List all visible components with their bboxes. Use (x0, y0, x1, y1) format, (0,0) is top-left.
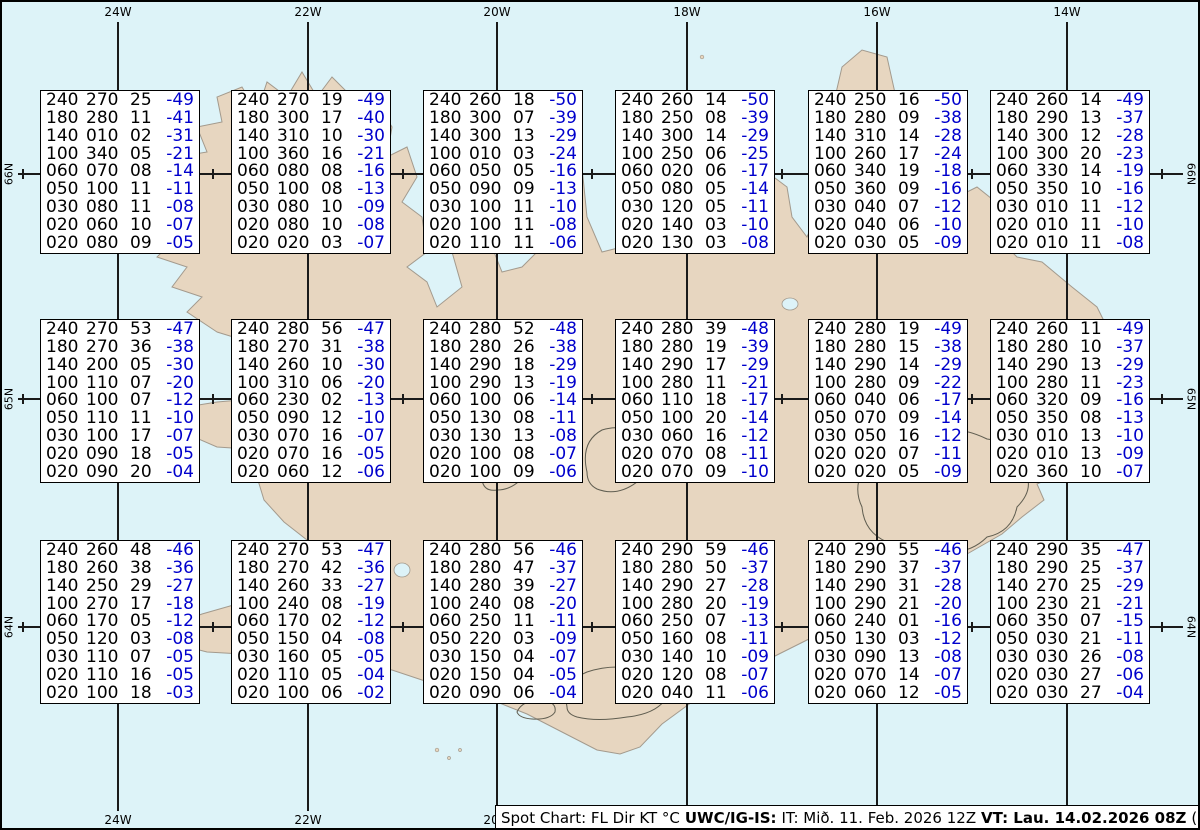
temperature-value: -27 (351, 578, 385, 596)
flight-level-value: 180 (46, 110, 86, 128)
spot-data-box: 24029035-4718029025-3714027025-291002302… (990, 540, 1150, 704)
data-row: 18029037-37 (814, 560, 962, 578)
temperature-value: -28 (735, 578, 769, 596)
temperature-value: -05 (928, 685, 962, 703)
wind-speed-value: 10 (1080, 464, 1110, 482)
graticule-tick (402, 394, 404, 404)
data-row: 02003005-09 (814, 235, 962, 253)
wind-speed-value: 10 (321, 357, 351, 375)
graticule-tick (1161, 169, 1163, 179)
latitude-label-left: 66N (3, 163, 16, 185)
wind-direction-value: 270 (1036, 578, 1080, 596)
wind-speed-value: 15 (898, 339, 928, 357)
data-row: 18027042-36 (237, 560, 385, 578)
flight-level-value: 020 (814, 235, 854, 253)
wind-speed-value: 08 (705, 110, 735, 128)
wind-direction-value: 290 (854, 578, 898, 596)
data-row: 14026010-30 (237, 357, 385, 375)
data-row: 18028011-41 (46, 110, 194, 128)
temperature-value: -09 (928, 464, 962, 482)
data-row: 18030007-39 (429, 110, 577, 128)
wind-speed-value: 19 (705, 339, 735, 357)
data-row: 14029014-29 (814, 357, 962, 375)
wind-speed-value: 33 (321, 578, 351, 596)
flight-level-value: 180 (237, 339, 277, 357)
data-row: 02006012-05 (814, 685, 962, 703)
wind-direction-value: 030 (1036, 685, 1080, 703)
temperature-value: -38 (928, 110, 962, 128)
graticule-tick (212, 622, 214, 632)
temperature-value: -38 (928, 339, 962, 357)
flight-level-value: 180 (996, 339, 1036, 357)
temperature-value: -09 (928, 235, 962, 253)
flight-level-value: 020 (237, 685, 277, 703)
graticule-tick (402, 622, 404, 632)
wind-speed-value: 13 (513, 128, 543, 146)
latitude-label-right: 66N (1185, 163, 1198, 185)
longitude-label-top: 24W (104, 5, 131, 19)
wind-speed-value: 14 (898, 128, 928, 146)
temperature-value: -29 (928, 357, 962, 375)
temperature-value: -29 (735, 357, 769, 375)
flight-level-value: 140 (429, 578, 469, 596)
temperature-value: -37 (1110, 560, 1144, 578)
wind-speed-value: 06 (321, 685, 351, 703)
wind-direction-value: 290 (661, 357, 705, 375)
data-row: 18028009-38 (814, 110, 962, 128)
wind-speed-value: 20 (130, 464, 160, 482)
temperature-value: -41 (160, 110, 194, 128)
wind-speed-value: 36 (130, 339, 160, 357)
flight-level-value: 140 (237, 128, 277, 146)
wind-speed-value: 37 (898, 560, 928, 578)
wind-direction-value: 020 (277, 235, 321, 253)
flight-level-value: 180 (46, 339, 86, 357)
temperature-value: -28 (928, 578, 962, 596)
temperature-value: -10 (735, 464, 769, 482)
latitude-label-right: 64N (1185, 616, 1198, 638)
wind-speed-value: 31 (898, 578, 928, 596)
spot-data-box: 24027053-4718027042-3614026033-271002400… (231, 540, 391, 704)
temperature-value: -04 (543, 685, 577, 703)
wind-speed-value: 12 (898, 685, 928, 703)
wind-speed-value: 47 (513, 560, 543, 578)
status-segment: Spot Chart: FL Dir KT °C (501, 809, 680, 827)
spot-data-box: 24028019-4918028015-3814029014-291002800… (808, 319, 968, 483)
wind-direction-value: 280 (854, 110, 898, 128)
wind-speed-value: 12 (321, 464, 351, 482)
wind-direction-value: 020 (854, 464, 898, 482)
wind-direction-value: 270 (86, 339, 130, 357)
thingvallavatn-lake (394, 563, 410, 577)
data-row: 02001011-08 (996, 235, 1144, 253)
temperature-value: -28 (1110, 128, 1144, 146)
temperature-value: -40 (351, 110, 385, 128)
temperature-value: -06 (351, 464, 385, 482)
data-row: 14028039-27 (429, 578, 577, 596)
data-row: 02011011-06 (429, 235, 577, 253)
temperature-value: -38 (160, 339, 194, 357)
temperature-value: -08 (735, 235, 769, 253)
flight-level-value: 180 (814, 110, 854, 128)
data-row: 18027036-38 (46, 339, 194, 357)
flight-level-value: 140 (996, 128, 1036, 146)
flight-level-value: 180 (237, 110, 277, 128)
data-row: 02008009-05 (46, 235, 194, 253)
flight-level-value: 020 (814, 685, 854, 703)
temperature-value: -37 (1110, 339, 1144, 357)
latitude-label-left: 65N (3, 388, 16, 410)
graticule-tick (212, 394, 214, 404)
wind-speed-value: 05 (130, 357, 160, 375)
wind-speed-value: 25 (1080, 578, 1110, 596)
wind-direction-value: 100 (86, 685, 130, 703)
wind-direction-value: 290 (1036, 110, 1080, 128)
graticule-tick (402, 169, 404, 179)
status-segment: IT: Mið. 11. Feb. 2026 12Z (782, 809, 977, 827)
graticule-tick (971, 394, 973, 404)
wind-direction-value: 060 (854, 685, 898, 703)
wind-direction-value: 250 (86, 578, 130, 596)
wind-speed-value: 17 (321, 110, 351, 128)
wind-direction-value: 080 (86, 235, 130, 253)
spot-data-box: 24026048-4618026038-3614025029-271002701… (40, 540, 200, 704)
status-segment-bold: VT: Lau. 14.02.2026 08Z (981, 809, 1186, 827)
wind-direction-value: 310 (854, 128, 898, 146)
temperature-value: -02 (351, 685, 385, 703)
wind-speed-value: 31 (321, 339, 351, 357)
latitude-label-left: 64N (3, 616, 16, 638)
flight-level-value: 140 (237, 578, 277, 596)
wind-direction-value: 100 (469, 464, 513, 482)
flight-level-value: 020 (237, 235, 277, 253)
status-segment-bold: UWC/IG-IS: (685, 809, 777, 827)
temperature-value: -29 (1110, 578, 1144, 596)
wind-speed-value: 17 (705, 357, 735, 375)
flight-level-value: 020 (621, 235, 661, 253)
graticule-tick (212, 169, 214, 179)
wind-direction-value: 290 (1036, 357, 1080, 375)
wind-direction-value: 280 (469, 560, 513, 578)
spot-chart-frame: 24W24W22W22W20W20W18W16W14W66N66N65N65N6… (0, 0, 1200, 830)
flight-level-value: 180 (621, 560, 661, 578)
flight-level-value: 140 (814, 128, 854, 146)
flight-level-value: 180 (46, 560, 86, 578)
wind-direction-value: 260 (277, 578, 321, 596)
flight-level-value: 180 (996, 560, 1036, 578)
data-row: 02013003-08 (621, 235, 769, 253)
wind-speed-value: 26 (513, 339, 543, 357)
graticule-tick (22, 394, 24, 404)
wind-speed-value: 10 (321, 128, 351, 146)
temperature-value: -05 (160, 235, 194, 253)
flight-level-value: 180 (237, 560, 277, 578)
temperature-value: -06 (735, 685, 769, 703)
wind-direction-value: 290 (854, 357, 898, 375)
data-row: 18029025-37 (996, 560, 1144, 578)
data-row: 14031010-30 (237, 128, 385, 146)
wind-direction-value: 300 (661, 128, 705, 146)
longitude-label-top: 18W (673, 5, 700, 19)
wind-direction-value: 090 (469, 685, 513, 703)
data-row: 18028026-38 (429, 339, 577, 357)
flight-level-value: 140 (996, 578, 1036, 596)
wind-direction-value: 280 (661, 560, 705, 578)
wind-direction-value: 200 (86, 357, 130, 375)
graticule-tick (971, 622, 973, 632)
flight-level-value: 140 (429, 128, 469, 146)
wind-speed-value: 09 (705, 464, 735, 482)
wind-speed-value: 50 (705, 560, 735, 578)
graticule-tick (22, 169, 24, 179)
wind-speed-value: 09 (130, 235, 160, 253)
temperature-value: -06 (543, 235, 577, 253)
temperature-value: -36 (160, 560, 194, 578)
longitude-label-top: 20W (483, 5, 510, 19)
spot-data-box: 24026011-4918028010-3714029013-291002801… (990, 319, 1150, 483)
data-row: 02010009-06 (429, 464, 577, 482)
data-row: 18028050-37 (621, 560, 769, 578)
wind-direction-value: 110 (469, 235, 513, 253)
flight-level-value: 020 (814, 464, 854, 482)
wind-speed-value: 14 (705, 128, 735, 146)
temperature-value: -37 (543, 560, 577, 578)
spot-data-box: 24028052-4818028026-3814029018-291002901… (423, 319, 583, 483)
status-bar: Spot Chart: FL Dir KT °CUWC/IG-IS:IT: Mi… (495, 805, 1200, 830)
temperature-value: -07 (351, 235, 385, 253)
spot-data-box: 24027025-4918028011-4114001002-311003400… (40, 90, 200, 254)
graticule-tick (591, 394, 593, 404)
temperature-value: -07 (1110, 464, 1144, 482)
wind-direction-value: 310 (277, 128, 321, 146)
temperature-value: -04 (160, 464, 194, 482)
temperature-value: -30 (351, 357, 385, 375)
data-row: 02004011-06 (621, 685, 769, 703)
spot-data-box: 24028039-4818028019-3914029017-291002801… (615, 319, 775, 483)
flight-level-value: 140 (46, 128, 86, 146)
flight-level-value: 180 (429, 110, 469, 128)
data-row: 14029017-29 (621, 357, 769, 375)
status-segment: (+68 h) (1191, 809, 1200, 827)
wind-direction-value: 290 (854, 560, 898, 578)
data-row: 18026038-36 (46, 560, 194, 578)
temperature-value: -06 (543, 464, 577, 482)
wind-speed-value: 14 (898, 357, 928, 375)
temperature-value: -36 (351, 560, 385, 578)
temperature-value: -37 (928, 560, 962, 578)
temperature-value: -03 (160, 685, 194, 703)
wind-speed-value: 25 (1080, 560, 1110, 578)
wind-speed-value: 11 (1080, 235, 1110, 253)
wind-direction-value: 060 (277, 464, 321, 482)
wind-speed-value: 05 (898, 235, 928, 253)
graticule-tick (1161, 394, 1163, 404)
flight-level-value: 020 (46, 235, 86, 253)
data-row: 02010006-02 (237, 685, 385, 703)
wind-speed-value: 13 (1080, 357, 1110, 375)
longitude-label-top: 14W (1053, 5, 1080, 19)
flight-level-value: 180 (429, 560, 469, 578)
wind-direction-value: 280 (469, 578, 513, 596)
wind-speed-value: 03 (321, 235, 351, 253)
wind-direction-value: 270 (277, 339, 321, 357)
wind-direction-value: 290 (469, 357, 513, 375)
flight-level-value: 140 (429, 357, 469, 375)
spot-data-box: 24026014-4918029013-3714030012-281003002… (990, 90, 1150, 254)
wind-direction-value: 100 (277, 685, 321, 703)
wind-direction-value: 010 (86, 128, 130, 146)
wind-speed-value: 38 (130, 560, 160, 578)
wind-speed-value: 27 (705, 578, 735, 596)
flight-level-value: 020 (996, 235, 1036, 253)
flight-level-value: 020 (237, 464, 277, 482)
wind-direction-value: 260 (86, 560, 130, 578)
data-row: 14029018-29 (429, 357, 577, 375)
flight-level-value: 140 (621, 357, 661, 375)
data-row: 02009020-04 (46, 464, 194, 482)
wind-direction-value: 360 (1036, 464, 1080, 482)
longitude-label-top: 22W (294, 5, 321, 19)
flight-level-value: 140 (814, 357, 854, 375)
graticule-tick (591, 622, 593, 632)
data-row: 18029013-37 (996, 110, 1144, 128)
graticule-tick (971, 169, 973, 179)
wind-direction-value: 260 (277, 357, 321, 375)
data-row: 14026033-27 (237, 578, 385, 596)
flight-level-value: 180 (621, 339, 661, 357)
spot-data-box: 24025016-5018028009-3814031014-281002601… (808, 90, 968, 254)
graticule-tick (781, 169, 783, 179)
spot-data-box: 24026018-5018030007-3914030013-291000100… (423, 90, 583, 254)
data-row: 18028047-37 (429, 560, 577, 578)
data-row: 14030013-29 (429, 128, 577, 146)
data-row: 02006012-06 (237, 464, 385, 482)
data-row: 18028019-39 (621, 339, 769, 357)
wind-speed-value: 18 (130, 685, 160, 703)
wind-speed-value: 11 (513, 235, 543, 253)
flight-level-value: 020 (429, 464, 469, 482)
spot-data-box: 24027019-4918030017-4014031010-301003601… (231, 90, 391, 254)
graticule-tick (781, 394, 783, 404)
wind-direction-value: 290 (661, 578, 705, 596)
data-row: 14031014-28 (814, 128, 962, 146)
flight-level-value: 180 (429, 339, 469, 357)
flight-level-value: 180 (814, 339, 854, 357)
data-row: 14029027-28 (621, 578, 769, 596)
flight-level-value: 140 (46, 357, 86, 375)
wind-speed-value: 09 (898, 110, 928, 128)
wind-direction-value: 300 (469, 110, 513, 128)
wind-direction-value: 290 (1036, 560, 1080, 578)
wind-speed-value: 02 (130, 128, 160, 146)
flight-level-value: 180 (996, 110, 1036, 128)
wind-speed-value: 10 (1080, 339, 1110, 357)
flight-level-value: 140 (621, 578, 661, 596)
temperature-value: -29 (735, 128, 769, 146)
wind-direction-value: 280 (854, 339, 898, 357)
temperature-value: -28 (928, 128, 962, 146)
data-row: 14030014-29 (621, 128, 769, 146)
data-row: 18028010-37 (996, 339, 1144, 357)
wind-speed-value: 39 (513, 578, 543, 596)
temperature-value: -39 (543, 110, 577, 128)
flight-level-value: 020 (429, 685, 469, 703)
temperature-value: -08 (1110, 235, 1144, 253)
wind-speed-value: 11 (130, 110, 160, 128)
wind-direction-value: 040 (661, 685, 705, 703)
temperature-value: -29 (543, 357, 577, 375)
data-row: 18028015-38 (814, 339, 962, 357)
longitude-label-top: 16W (863, 5, 890, 19)
flight-level-value: 020 (621, 685, 661, 703)
wind-speed-value: 42 (321, 560, 351, 578)
myvatn-lake (782, 298, 798, 310)
wind-direction-value: 270 (277, 560, 321, 578)
wind-direction-value: 030 (854, 235, 898, 253)
data-row: 02002005-09 (814, 464, 962, 482)
wind-direction-value: 010 (1036, 235, 1080, 253)
flight-level-value: 140 (996, 357, 1036, 375)
wind-direction-value: 130 (661, 235, 705, 253)
wind-speed-value: 12 (1080, 128, 1110, 146)
temperature-value: -37 (1110, 110, 1144, 128)
wind-direction-value: 280 (1036, 339, 1080, 357)
data-row: 18030017-40 (237, 110, 385, 128)
latitude-label-right: 65N (1185, 388, 1198, 410)
data-row: 14030012-28 (996, 128, 1144, 146)
wind-direction-value: 280 (86, 110, 130, 128)
temperature-value: -37 (735, 560, 769, 578)
wind-direction-value: 280 (661, 339, 705, 357)
temperature-value: -04 (1110, 685, 1144, 703)
temperature-value: -29 (543, 128, 577, 146)
flight-level-value: 140 (46, 578, 86, 596)
spot-data-box: 24029059-4618028050-3714029027-281002802… (615, 540, 775, 704)
wind-direction-value: 250 (661, 110, 705, 128)
data-row: 14025029-27 (46, 578, 194, 596)
temperature-value: -30 (351, 128, 385, 146)
temperature-value: -29 (1110, 357, 1144, 375)
temperature-value: -30 (160, 357, 194, 375)
wind-direction-value: 300 (277, 110, 321, 128)
wind-speed-value: 05 (898, 464, 928, 482)
temperature-value: -38 (351, 339, 385, 357)
wind-speed-value: 03 (705, 235, 735, 253)
data-row: 02009006-04 (429, 685, 577, 703)
flight-level-value: 020 (46, 685, 86, 703)
spot-data-box: 24028056-4618028047-3714028039-271002400… (423, 540, 583, 704)
data-row: 14027025-29 (996, 578, 1144, 596)
spot-data-box: 24027053-4718027036-3814020005-301001100… (40, 319, 200, 483)
flight-level-value: 020 (996, 464, 1036, 482)
flight-level-value: 180 (621, 110, 661, 128)
graticule-tick (22, 622, 24, 632)
data-row: 02007009-10 (621, 464, 769, 482)
wind-speed-value: 06 (513, 685, 543, 703)
flight-level-value: 020 (429, 235, 469, 253)
wind-speed-value: 09 (513, 464, 543, 482)
spot-data-box: 24029055-4618029037-3714029031-281002902… (808, 540, 968, 704)
wind-speed-value: 11 (705, 685, 735, 703)
data-row: 02036010-07 (996, 464, 1144, 482)
temperature-value: -38 (543, 339, 577, 357)
flight-level-value: 140 (814, 578, 854, 596)
longitude-label-bottom: 24W (104, 813, 131, 827)
wind-speed-value: 18 (513, 357, 543, 375)
wind-direction-value: 300 (1036, 128, 1080, 146)
wind-speed-value: 07 (513, 110, 543, 128)
wind-direction-value: 300 (469, 128, 513, 146)
